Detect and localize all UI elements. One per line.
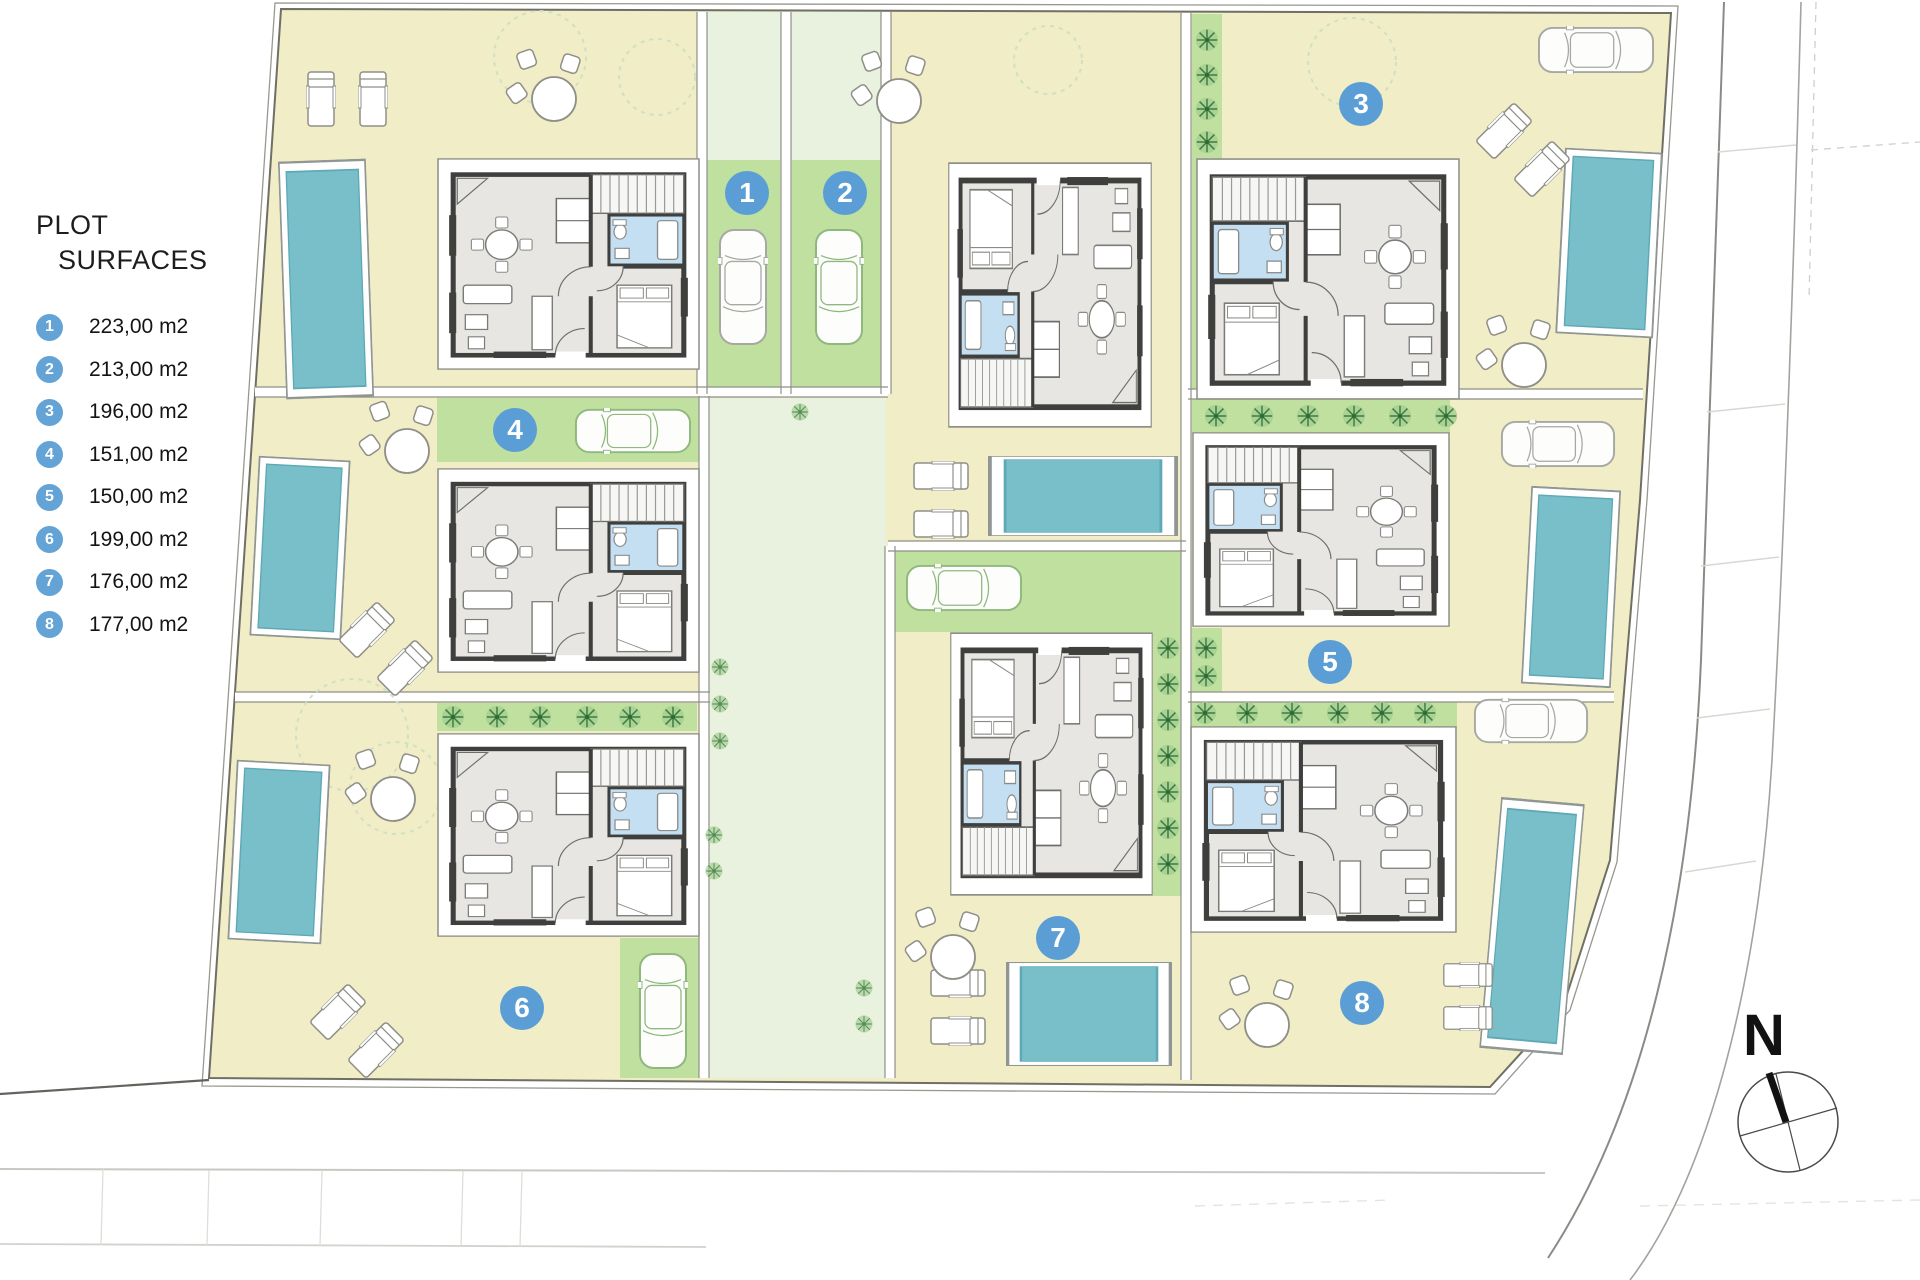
tree [576, 706, 598, 728]
tree [1196, 131, 1218, 153]
tree [1157, 745, 1179, 767]
tree [1414, 702, 1436, 724]
legend-row-4: 4 151,00 m2 [36, 434, 256, 477]
tree [1157, 817, 1179, 839]
tree [1195, 665, 1217, 687]
pool-6 [228, 761, 329, 944]
legend-circle-7: 7 [36, 569, 63, 596]
site-plan-drawing: N [0, 0, 1920, 1280]
tree [705, 862, 722, 879]
house-7 [951, 633, 1152, 895]
tree-strip-plot5 [1192, 398, 1450, 434]
pool-2 [990, 456, 1176, 535]
tree [711, 658, 728, 675]
plot-badge-4: 4 [493, 408, 537, 452]
pool-4 [250, 457, 349, 640]
pool-5 [1522, 487, 1620, 687]
plot-surfaces-legend: PLOT SURFACES 1 223,00 m2 2 213,00 m2 3 … [36, 208, 208, 278]
pool-3 [1556, 149, 1662, 338]
house-4 [438, 469, 699, 672]
tree [1343, 405, 1365, 427]
car-plot-2 [813, 230, 865, 344]
plot-badge-8: 8 [1340, 981, 1384, 1025]
legend-row-2: 2 213,00 m2 [36, 349, 256, 392]
lounger [306, 72, 336, 126]
house-5 [1193, 433, 1449, 626]
tree [1371, 702, 1393, 724]
tree [1194, 702, 1216, 724]
tree [1195, 637, 1217, 659]
tree [662, 706, 684, 728]
legend-circle-3: 3 [36, 399, 63, 426]
tree [442, 706, 464, 728]
legend-title: PLOT SURFACES [36, 208, 208, 278]
tree [1236, 702, 1258, 724]
tree [855, 1015, 872, 1032]
lounger [914, 509, 968, 539]
legend-area-2: 213,00 m2 [89, 358, 188, 382]
legend-circle-2: 2 [36, 356, 63, 383]
boundary-extension [0, 1080, 209, 1094]
pool-7 [1008, 963, 1171, 1066]
legend-row-3: 3 196,00 m2 [36, 391, 256, 434]
house-8 [1191, 727, 1456, 932]
legend-row-8: 8 177,00 m2 [36, 604, 256, 647]
legend-area-7: 176,00 m2 [89, 570, 188, 594]
legend-area-1: 223,00 m2 [89, 315, 188, 339]
legend-circle-8: 8 [36, 611, 63, 638]
tree [1251, 405, 1273, 427]
house-1 [438, 159, 699, 369]
lounger [931, 1016, 985, 1046]
legend-area-8: 177,00 m2 [89, 613, 188, 637]
tree [1157, 637, 1179, 659]
legend-row-6: 6 199,00 m2 [36, 519, 256, 562]
legend-area-3: 196,00 m2 [89, 400, 188, 424]
legend-items: 1 223,00 m2 2 213,00 m2 3 196,00 m2 4 15… [36, 306, 256, 646]
legend-title-line2: SURFACES [58, 243, 208, 278]
plot-badge-6: 6 [500, 986, 544, 1030]
tree [1196, 64, 1218, 86]
tree-strip-plot6 [437, 703, 697, 731]
tree [1389, 405, 1411, 427]
plot-badge-5: 5 [1308, 640, 1352, 684]
site-plan-page: N PLOT SURFACES 1 223,00 m2 2 213,00 m2 … [0, 0, 1920, 1280]
north-label: N [1743, 1003, 1785, 1068]
legend-circle-5: 5 [36, 484, 63, 511]
bottom-sidewalk-line-2 [0, 1244, 706, 1247]
car-plot-1 [717, 230, 769, 344]
tree [529, 706, 551, 728]
legend-row-1: 1 223,00 m2 [36, 306, 256, 349]
car-plot-6 [637, 954, 689, 1068]
tree [1205, 405, 1227, 427]
legend-circle-4: 4 [36, 441, 63, 468]
tree [1157, 853, 1179, 875]
legend-row-5: 5 150,00 m2 [36, 476, 256, 519]
plot-badge-1: 1 [725, 171, 769, 215]
sidewalk-dashes [1809, 2, 1920, 300]
bottom-sidewalk-line-1 [0, 1169, 1545, 1173]
plot-badge-2: 2 [823, 171, 867, 215]
tree [1327, 702, 1349, 724]
car-plot-5 [1502, 419, 1614, 469]
north-compass: N [1738, 1003, 1838, 1172]
tree [1297, 405, 1319, 427]
tree [1196, 98, 1218, 120]
plot-badge-7: 7 [1036, 916, 1080, 960]
pool-1 [279, 160, 373, 398]
tree [1157, 709, 1179, 731]
car-plot-7 [907, 563, 1021, 613]
tree [619, 706, 641, 728]
tree [486, 706, 508, 728]
lounger [914, 461, 968, 491]
lounger [358, 72, 388, 126]
tree [1281, 702, 1303, 724]
legend-title-line1: PLOT [36, 210, 109, 240]
legend-row-7: 7 176,00 m2 [36, 561, 256, 604]
house-2 [949, 163, 1151, 427]
car-plot-4 [576, 407, 690, 455]
legend-area-5: 150,00 m2 [89, 485, 188, 509]
lounger [1444, 962, 1492, 988]
tree [705, 826, 722, 843]
sidewalk-joints [1685, 145, 1796, 872]
plot-badge-3: 3 [1339, 82, 1383, 126]
tree [791, 403, 808, 420]
car-plot-8 [1475, 697, 1587, 745]
house-3 [1197, 159, 1459, 399]
tree [1435, 405, 1457, 427]
legend-area-4: 151,00 m2 [89, 443, 188, 467]
central-driveway [708, 398, 886, 1078]
legend-circle-1: 1 [36, 314, 63, 341]
car-plot-3 [1539, 25, 1653, 75]
tree [1157, 673, 1179, 695]
tree [855, 979, 872, 996]
lounger [1444, 1005, 1492, 1031]
tree [1196, 29, 1218, 51]
legend-area-6: 199,00 m2 [89, 528, 188, 552]
tree [1157, 781, 1179, 803]
legend-circle-6: 6 [36, 526, 63, 553]
tree [711, 695, 728, 712]
bottom-sidewalk-joints [101, 1169, 522, 1247]
tree [711, 732, 728, 749]
house-6 [438, 734, 699, 936]
